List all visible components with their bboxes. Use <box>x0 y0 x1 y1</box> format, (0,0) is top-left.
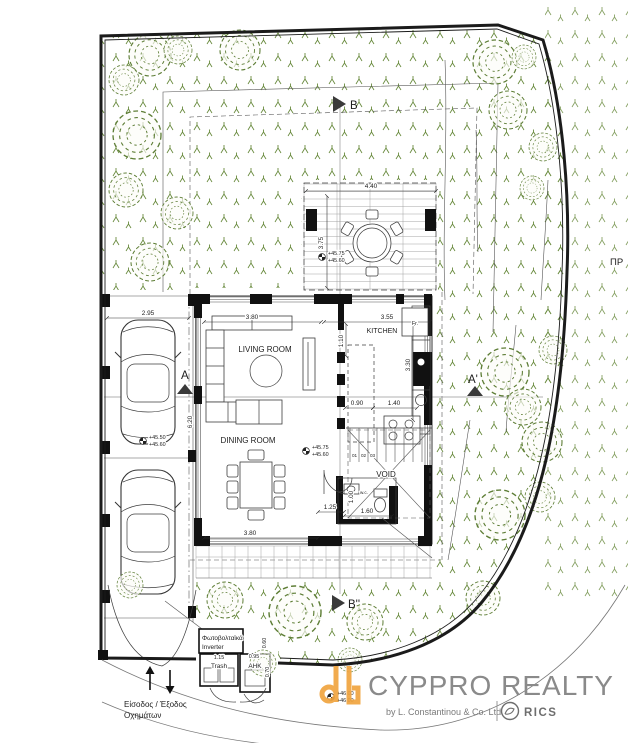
label-wc: w.c. <box>360 490 368 495</box>
level-pergola-bottom: +45.60 <box>328 258 345 264</box>
pergola-terrace <box>304 183 436 290</box>
label-void: VOID <box>376 470 396 479</box>
dim-wc-width: 1.60 <box>361 508 374 515</box>
label-inverter: Inverter <box>202 644 225 651</box>
dim-pergola-depth: 3.75 <box>318 236 325 249</box>
label-living-room: LIVING ROOM <box>238 345 292 354</box>
section-label-b-prime: B'' <box>348 599 360 611</box>
dim-counter-width: 1.40 <box>388 400 401 407</box>
dim-kitchen-depth: 3.30 <box>405 358 412 371</box>
brand-byline: by L. Constantinou & Co. Ltd <box>386 707 501 717</box>
label-trash: Trash <box>211 663 228 670</box>
dim-living-depth: 6.20 <box>187 415 194 428</box>
dim-hall-width: 1.25 <box>324 504 337 511</box>
section-label-a-prime: A' <box>468 374 478 386</box>
level-parking-top: +45.50 <box>149 435 166 441</box>
dim-living-width: 3.80 <box>246 314 259 321</box>
stair-number-1: 01 <box>352 453 358 458</box>
label-ahk: ΑΗΚ <box>248 663 262 670</box>
level-dining-top: +45.75 <box>312 445 329 451</box>
level-parking-bottom: +45.60 <box>149 442 166 448</box>
level-pergola-top: +45.75 <box>328 251 345 257</box>
parked-car-1 <box>115 320 181 444</box>
dim-ahk-width: 0.95 <box>249 654 260 660</box>
label-kitchen: KITCHEN <box>367 328 398 335</box>
dim-island-gap: 0.90 <box>351 400 364 407</box>
label-fridge: Fr. <box>412 321 418 327</box>
brand-name: CYPPRO REALTY <box>368 670 614 701</box>
dim-terrace-width: 3.80 <box>244 530 257 537</box>
dim-trash-width: 1.15 <box>214 655 225 661</box>
section-label-b: B <box>350 100 358 112</box>
stair-number-3: 03 <box>370 453 376 458</box>
label-dining-room: DINING ROOM <box>220 436 275 445</box>
dim-parking-width: 2.95 <box>142 310 155 317</box>
rics-label: RICS <box>524 707 557 719</box>
site-plan-page: B B'' A A' 4.40 3.75 2.95 3.80 3.55 1.10… <box>0 0 628 743</box>
stair-number-2: 02 <box>361 453 367 458</box>
dim-ahk-depth: 0.70 <box>265 667 271 678</box>
dim-pv-depth: 0.60 <box>262 638 268 649</box>
section-label-a: A <box>181 370 189 382</box>
entrance-label-line1: Είσοδος / Έξοδος <box>124 700 187 709</box>
dim-wc-depth: 1.00 <box>348 490 355 503</box>
dim-entry-depth: 1.10 <box>338 334 345 347</box>
label-photovoltaic: Φωτοβολταϊκά <box>202 634 243 642</box>
edge-note: ΠΡ <box>610 257 623 268</box>
level-dining-bottom: +45.60 <box>312 452 329 458</box>
site-plan-drawing: B B'' A A' 4.40 3.75 2.95 3.80 3.55 1.10… <box>0 0 628 743</box>
dim-pergola-width: 4.40 <box>365 183 378 190</box>
outdoor-table <box>353 224 391 262</box>
dim-kitchen-width: 3.55 <box>381 314 394 321</box>
entrance-label-line2: Οχημάτων <box>124 711 161 720</box>
